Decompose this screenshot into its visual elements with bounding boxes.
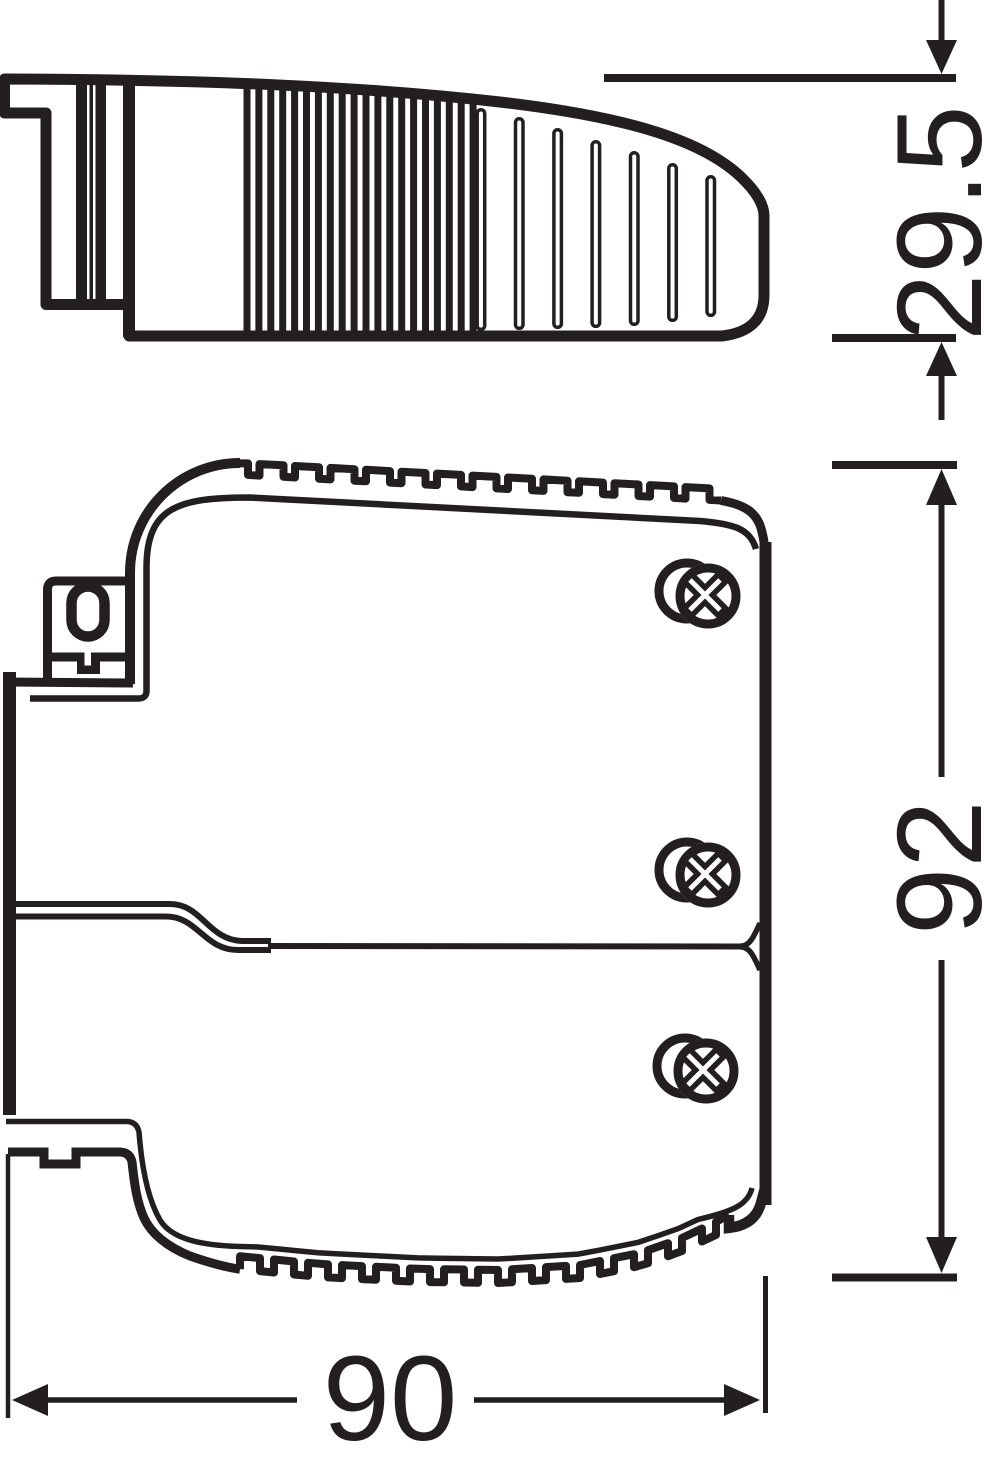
svg-text:90: 90 (323, 1330, 458, 1461)
svg-text:92: 92 (871, 800, 1000, 935)
svg-text:29.5: 29.5 (871, 105, 1000, 341)
